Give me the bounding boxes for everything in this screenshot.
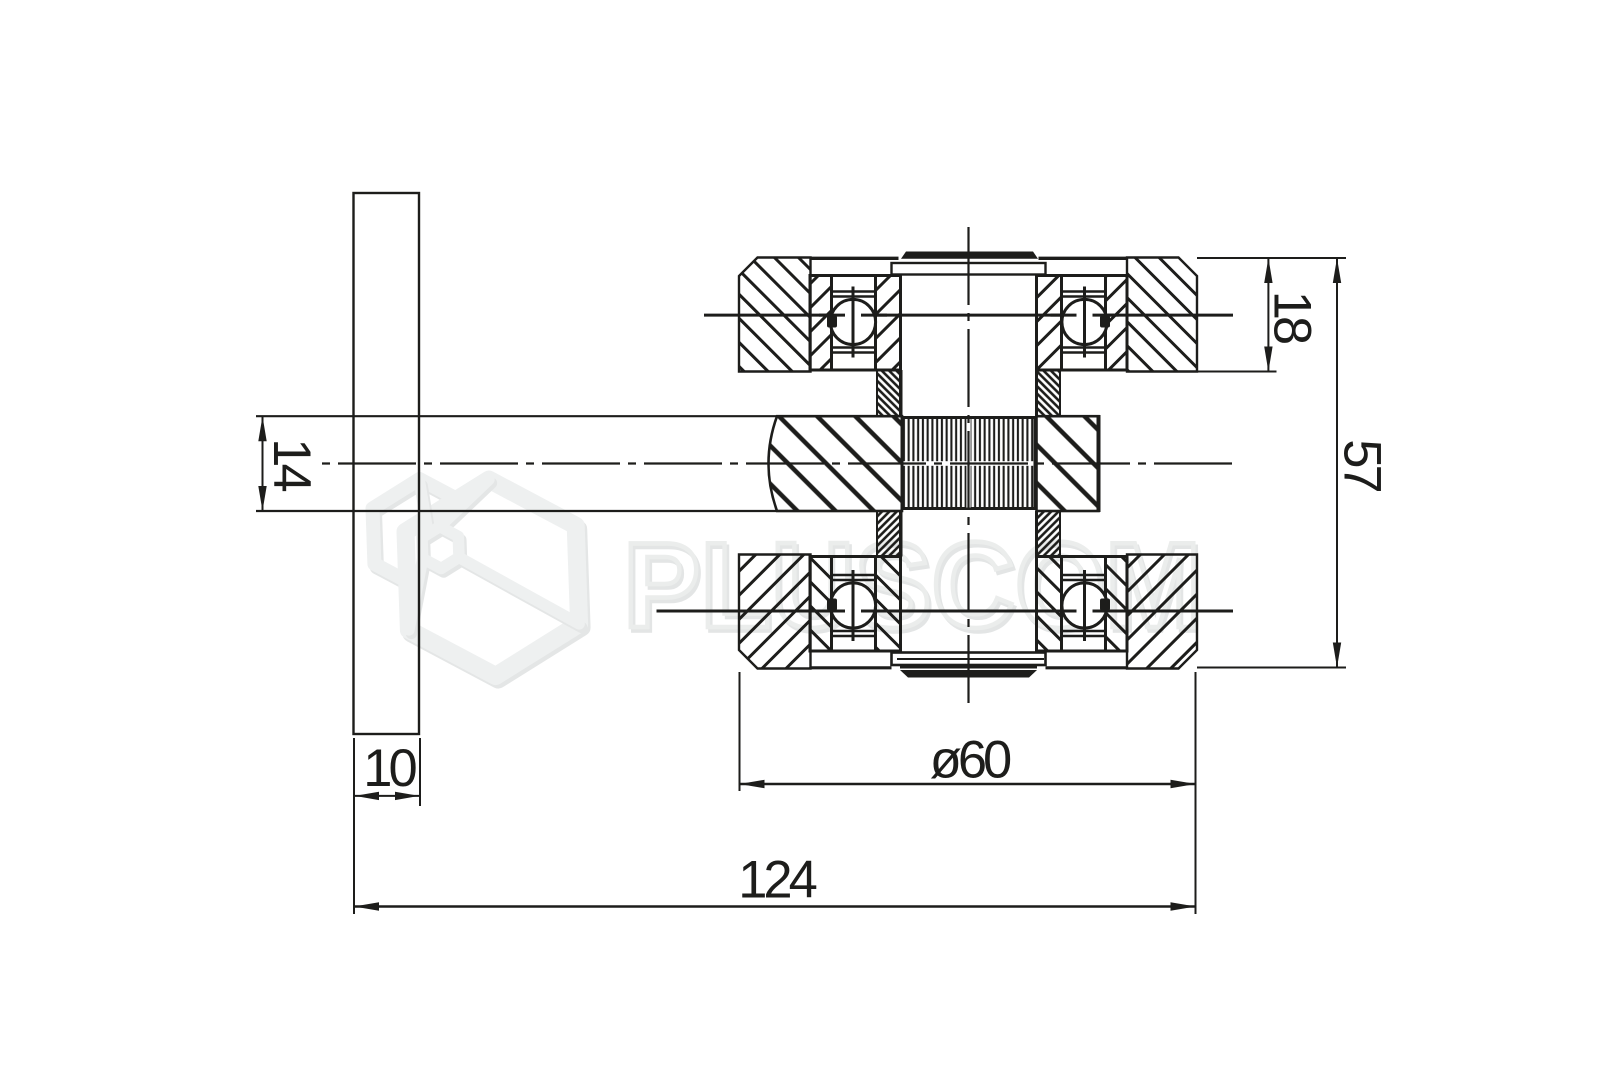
svg-text:124: 124 <box>738 851 816 910</box>
svg-text:14: 14 <box>262 438 321 491</box>
svg-text:10: 10 <box>363 739 416 798</box>
svg-text:18: 18 <box>1263 291 1322 343</box>
svg-text:57: 57 <box>1333 439 1392 491</box>
svg-text:ø60: ø60 <box>930 731 1011 790</box>
